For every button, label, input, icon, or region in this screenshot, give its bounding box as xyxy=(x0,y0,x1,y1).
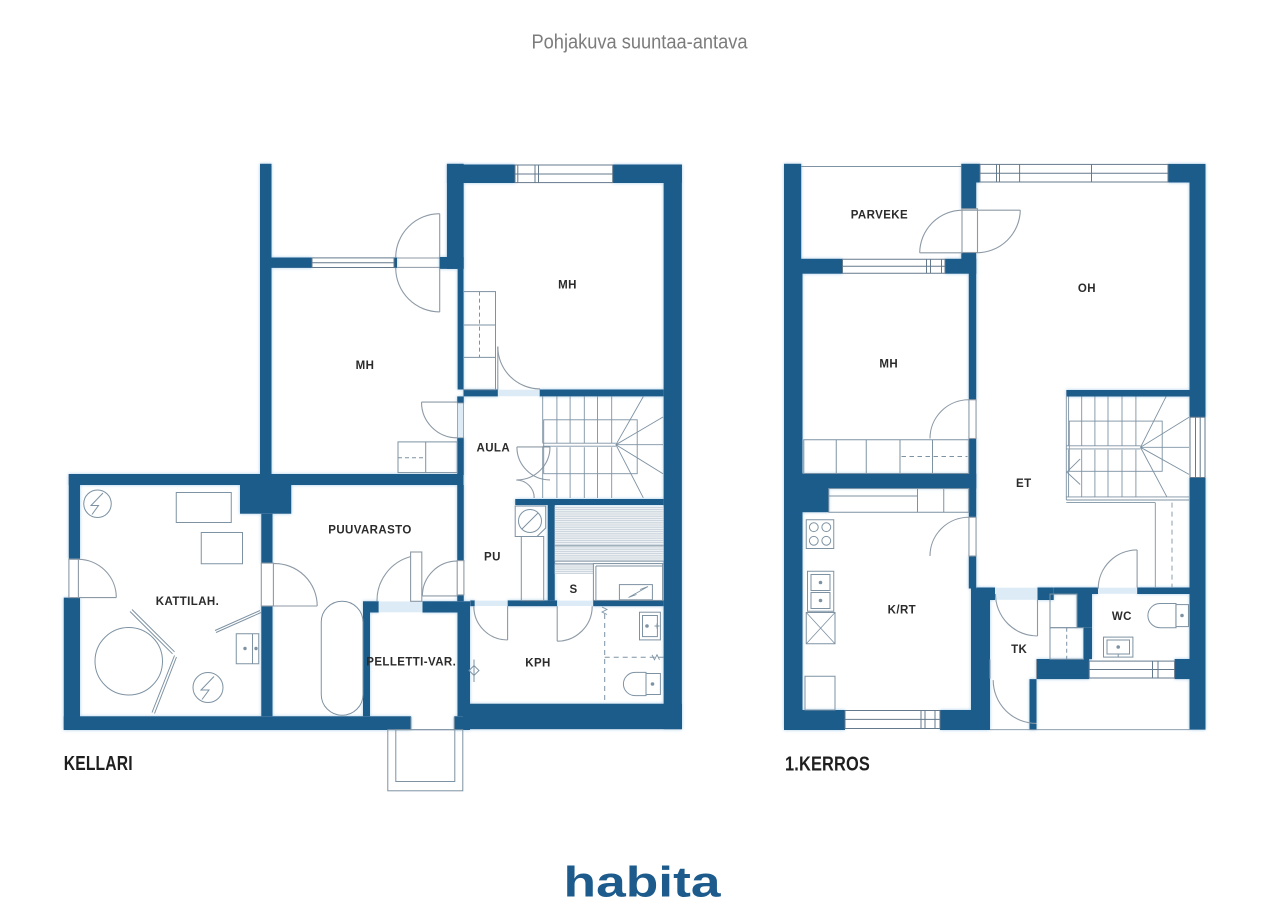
svg-text:Pohjakuva suuntaa-antava: Pohjakuva suuntaa-antava xyxy=(532,32,749,54)
svg-text:1.KERROS: 1.KERROS xyxy=(785,753,870,776)
svg-text:KATTILAH.: KATTILAH. xyxy=(156,596,219,608)
svg-text:MH: MH xyxy=(879,358,898,370)
svg-text:S: S xyxy=(570,584,578,596)
svg-text:MH: MH xyxy=(558,280,577,292)
svg-text:TK: TK xyxy=(1011,644,1027,656)
svg-text:ET: ET xyxy=(1016,478,1032,490)
svg-text:K/RT: K/RT xyxy=(888,605,916,617)
svg-text:OH: OH xyxy=(1078,283,1096,295)
svg-text:AULA: AULA xyxy=(477,442,511,454)
svg-text:PUUVARASTO: PUUVARASTO xyxy=(328,525,411,537)
svg-text:KELLARI: KELLARI xyxy=(64,752,133,775)
svg-text:KPH: KPH xyxy=(525,658,550,670)
svg-text:MH: MH xyxy=(356,360,375,372)
svg-text:habita: habita xyxy=(564,859,722,905)
svg-text:PELLETTI-VAR.: PELLETTI-VAR. xyxy=(366,657,456,669)
svg-text:PU: PU xyxy=(484,552,501,564)
svg-text:WC: WC xyxy=(1112,611,1132,623)
svg-text:PARVEKE: PARVEKE xyxy=(851,210,908,222)
